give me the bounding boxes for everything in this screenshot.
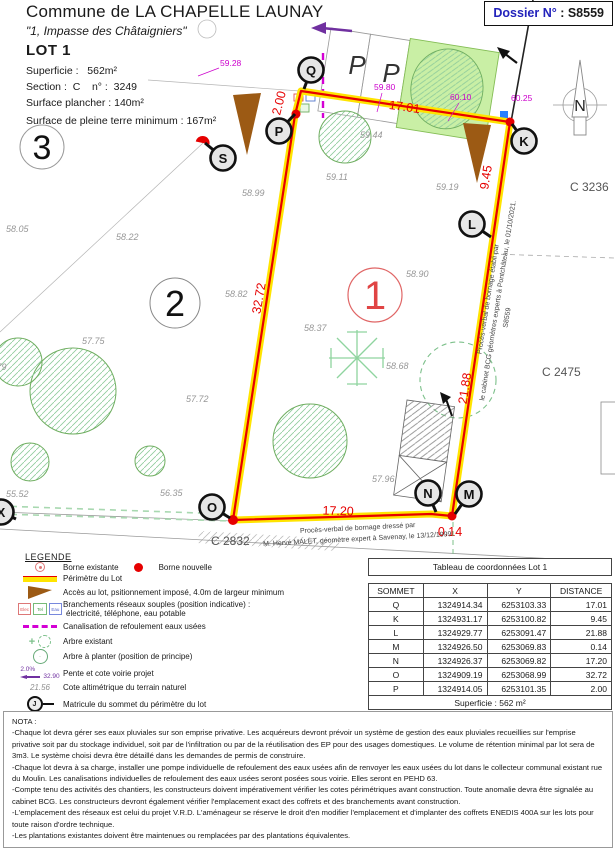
parcel-2: 2 <box>165 283 185 324</box>
tel-box-icon: Tel <box>33 603 46 615</box>
nota-title: NOTA : <box>12 716 604 727</box>
svg-text:55.52: 55.52 <box>6 489 29 499</box>
legend-row-arbre-existant: + Arbre existant <box>17 635 112 648</box>
direction-arrow-icon <box>497 47 517 63</box>
table-row: M1324926.506253069.830.14 <box>369 640 612 654</box>
dossier-label: Dossier N° <box>493 6 556 20</box>
legend-row-bornes: Borne existante Borne nouvelle <box>17 562 212 572</box>
natural-level-icon: 21.56 <box>30 683 50 692</box>
svg-text:58.90: 58.90 <box>406 269 429 279</box>
matricule-icon: J <box>27 696 54 712</box>
table-row: P1324914.056253101.352.00 <box>369 682 612 696</box>
parking-label-1: P <box>348 50 366 80</box>
surface-plancher-line: Surface plancher : 140m² <box>26 97 323 109</box>
legend-label: Accès au lot, psitionnement imposé, 4.0m… <box>63 588 284 597</box>
north-label: N <box>574 98 586 115</box>
vertex-S: S <box>219 151 228 166</box>
cadastral-plan-page: { "header": { "commune": "Commune de LA … <box>0 0 615 842</box>
nota-paragraph: -L'emplacement des réseaux est celui du … <box>12 807 604 830</box>
table-row: L1324929.776253091.4721.88 <box>369 626 612 640</box>
legend-label: Branchements réseaux souples (position i… <box>63 600 250 609</box>
svg-text:59.11: 59.11 <box>326 172 348 182</box>
svg-text:59.44: 59.44 <box>360 130 383 140</box>
elec-box-icon: Elec <box>18 603 31 615</box>
dim-QK: 17.01 <box>388 98 421 116</box>
vertex-X: X <box>0 505 6 520</box>
dossier-number: : S8559 <box>557 6 604 20</box>
svg-text:57.96: 57.96 <box>372 474 395 484</box>
svg-text:58.22: 58.22 <box>116 232 139 242</box>
legend-row-arbre-planter: · Arbre à planter (position de principe) <box>17 649 192 664</box>
cadastre-ref: C 3236 <box>570 180 609 194</box>
eau-box-icon: Eau <box>49 603 62 615</box>
legend-label: Arbre existant <box>63 637 112 646</box>
svg-text:57.72: 57.72 <box>186 394 209 404</box>
table-header-row: SOMMETX YDISTANCE <box>369 584 612 598</box>
address-subtitle: "1, Impasse des Châtaigniers" <box>26 24 323 38</box>
legend-label: Borne existante <box>63 563 119 572</box>
perimeter-icon <box>23 576 57 582</box>
legend-title: LEGENDE <box>25 552 72 562</box>
nota-paragraph: -Compte tenu des activités des chantiers… <box>12 784 604 807</box>
dim-NO: 17.20 <box>322 503 354 518</box>
vertex-N: N <box>423 486 432 501</box>
dossier-box: Dossier N° : S8559 <box>484 1 613 26</box>
natural-levels: 58.05 58.22 58.99 58.82 59.44 59.11 59.1… <box>0 130 459 499</box>
pv-right-num: S8559 <box>502 307 512 328</box>
dim-KL: 9.45 <box>477 164 495 190</box>
cadastre-ref: C 2832 <box>211 534 250 548</box>
north-compass-icon: N <box>553 60 607 135</box>
vertex-L: L <box>468 217 476 232</box>
legend-label: Matricule du sommet du périmètre du lot <box>63 700 206 709</box>
cadastre-ref: C 2475 <box>542 365 581 379</box>
existing-tree-icon: + <box>29 636 35 648</box>
parcel-3: 3 <box>33 129 52 167</box>
nota-paragraph: -Les plantations existantes doivent être… <box>12 830 604 841</box>
legend-label: Canalisation de refoulement eaux usées <box>63 622 206 631</box>
tree-to-plant-legend-icon: · <box>33 649 48 664</box>
project-level: 60.25 <box>511 93 533 103</box>
header: Commune de LA CHAPELLE LAUNAY "1, Impass… <box>26 2 323 127</box>
water-box-icon <box>500 111 508 118</box>
svg-text:58.37: 58.37 <box>304 323 328 333</box>
parcel-1: 1 <box>364 274 386 318</box>
project-level: 60.10 <box>450 92 472 102</box>
page-title: Commune de LA CHAPELLE LAUNAY <box>26 2 323 22</box>
legend-row-matricule: J Matricule du sommet du périmètre du lo… <box>17 696 206 712</box>
svg-text:M. Hervé MALET, géomètre exper: M. Hervé MALET, géomètre expert à Savena… <box>263 531 454 548</box>
nota-paragraph: -Chaque lot devra gérer ses eaux pluvial… <box>12 727 604 761</box>
borne-existante-icon <box>35 562 45 572</box>
neighbor-building <box>601 402 615 474</box>
legend-row-cote: 21.56 Cote altimétrique du terrain natur… <box>17 683 186 692</box>
nota-section: NOTA : -Chaque lot devra gérer ses eaux … <box>3 711 613 848</box>
table-footer-row: Superficie : 562 m² <box>369 696 612 710</box>
project-level: 59.80 <box>374 82 396 92</box>
svg-text:58.82: 58.82 <box>225 289 248 299</box>
svg-text:59.19: 59.19 <box>436 182 459 192</box>
legend-label: Périmètre du Lot <box>63 574 122 583</box>
legend-label: électricité, téléphone, eau potable <box>63 609 186 618</box>
sewer-line-icon <box>23 625 57 628</box>
slope-legend-icon: 2.0% 32.90 <box>20 667 59 680</box>
vertex-K: K <box>519 134 529 149</box>
svg-text:58.05: 58.05 <box>6 224 30 234</box>
table-row: N1324926.376253069.8217.20 <box>369 654 612 668</box>
half-borne-S <box>196 135 211 145</box>
legend-row-branchements: Elec Tel Eau Branchements réseaux souple… <box>17 600 250 618</box>
table-row: O1324909.196253068.9932.72 <box>369 668 612 682</box>
nota-paragraph: -Chaque lot devra à sa charge, installer… <box>12 762 604 785</box>
legend-row-acces: Accès au lot, psitionnement imposé, 4.0m… <box>17 586 284 599</box>
svg-text:57.75: 57.75 <box>82 336 106 346</box>
borne-nouvelle-icon <box>134 563 143 572</box>
legend-row-perimetre: Périmètre du Lot <box>17 574 122 583</box>
legend-label: Cote altimétrique du terrain naturel <box>63 683 186 692</box>
pleine-terre-line: Surface de pleine terre minimum : 167m² <box>26 115 323 127</box>
svg-text:55.79: 55.79 <box>0 362 7 372</box>
legend-label: Arbre à planter (position de principe) <box>63 652 192 661</box>
pv-bottom-text: Procès-verbal de bornage dressé par M. H… <box>262 520 453 548</box>
legend-row-canalisation: Canalisation de refoulement eaux usées <box>17 622 206 631</box>
access-icon <box>28 586 52 599</box>
table-row: K1324931.176253100.829.45 <box>369 612 612 626</box>
legend-row-pente: 2.0% 32.90 Pente et cote voirie projet <box>17 667 154 680</box>
legend-label: Pente et cote voirie projet <box>63 669 154 678</box>
svg-text:58.68: 58.68 <box>386 361 409 371</box>
vertex-M: M <box>464 487 475 502</box>
table-title: Tableau de coordonnées Lot 1 <box>368 558 612 576</box>
lot-title: LOT 1 <box>26 42 323 59</box>
legend-label: Borne nouvelle <box>159 563 212 572</box>
table-row: Q1324914.346253103.3317.01 <box>369 598 612 612</box>
superficie-line: Superficie : 562m² <box>26 65 323 77</box>
vertex-O: O <box>207 500 217 515</box>
section-line: Section : C n° : 3249 <box>26 81 323 93</box>
existing-trees <box>0 111 371 481</box>
tree-symbol-icon <box>329 330 385 386</box>
svg-text:56.35: 56.35 <box>160 488 184 498</box>
svg-text:58.99: 58.99 <box>242 188 265 198</box>
